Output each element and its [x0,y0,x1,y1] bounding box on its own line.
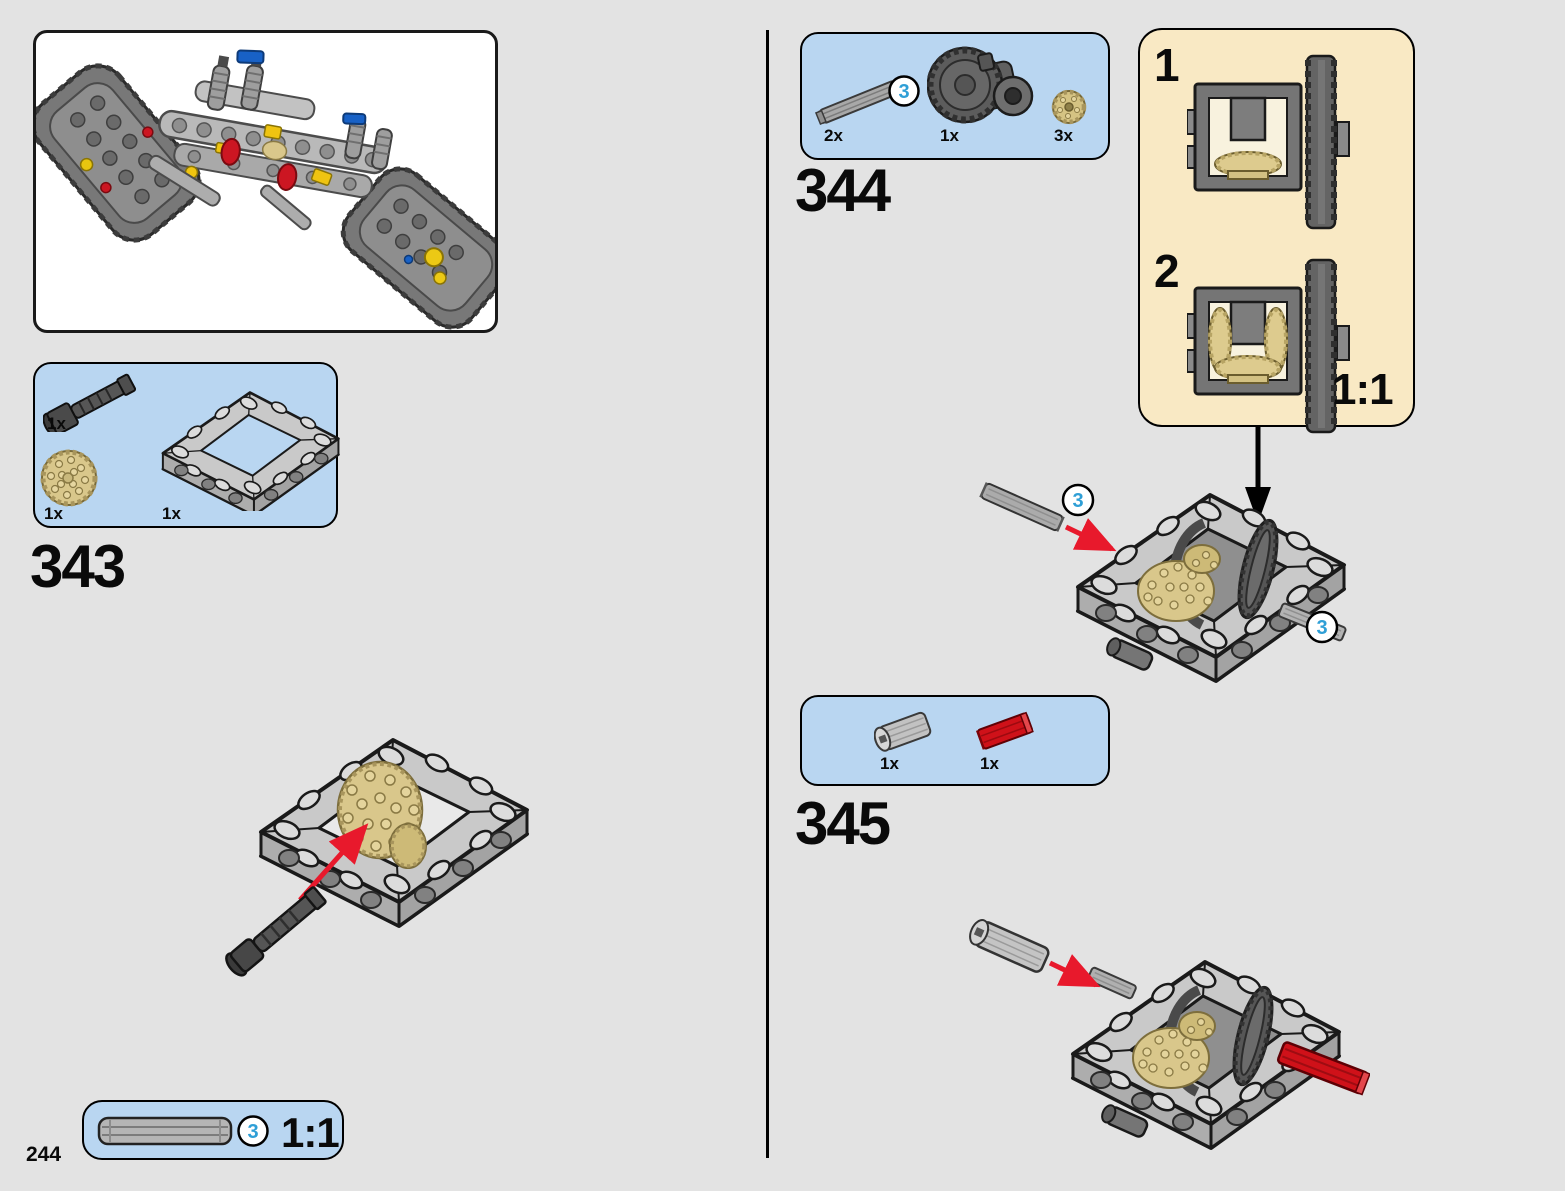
axle-scale-box: 3 1:1 [82,1100,344,1160]
qty-label: 1x [44,504,63,524]
parts-box-343: 1x 1x [33,362,338,528]
column-divider [766,30,769,1158]
assembly-345 [950,905,1370,1165]
step-number-345: 345 [795,794,889,854]
substep-2-label: 2 [1154,248,1180,294]
svg-text:3: 3 [1316,617,1327,639]
qty-label: 1x [880,754,899,774]
callout-circle-3: 3 [1063,485,1093,515]
insert-arrow [1066,527,1112,549]
svg-text:3: 3 [1072,490,1083,512]
page-number: 244 [26,1143,61,1167]
qty-label: 3x [1054,126,1073,146]
axle-1to1-icon [96,1111,236,1151]
qty-label: 2x [824,126,843,146]
axle-pin [223,884,329,978]
callout-circle-3: 3 [887,74,921,108]
qty-label: 1x [162,504,181,524]
step-number-343: 343 [30,537,124,597]
axle-connector [967,917,1051,973]
scale-box-1to1: 1 2 [1138,28,1415,427]
substep-1-illustration [1187,52,1352,232]
qty-label: 1x [940,126,959,146]
part-red-axle-icon [972,707,1038,753]
part-axle-connector-icon [874,707,936,753]
substep-2-illustration [1187,256,1352,436]
part-frame-icon [155,386,340,511]
scale-label: 1:1 [1332,368,1393,412]
parts-box-344: 3 2x 1x 3x [800,32,1110,160]
svg-text:3: 3 [247,1121,258,1143]
preview-illustration [36,33,495,330]
scale-label: 1:1 [281,1112,339,1154]
svg-text:3: 3 [898,81,909,103]
qty-label: 1x [980,754,999,774]
callout-circle-3: 3 [1307,612,1337,642]
parts-box-345: 1x 1x [800,695,1110,786]
instruction-page: 1x 1x [0,0,1565,1191]
preview-box [33,30,498,333]
step-number-344: 344 [795,161,889,221]
part-bevel-gear-icon [1048,86,1090,128]
assembly-343 [195,695,545,1015]
assembly-344: 3 3 [960,445,1380,695]
frame-with-differential [1078,495,1346,681]
substep-1-label: 1 [1154,42,1180,88]
part-knob-gear-icon [37,446,101,510]
callout-circle-3: 3 [236,1114,270,1148]
insert-axle [980,483,1063,532]
part-differential-icon [927,40,1037,135]
qty-label: 1x [47,414,66,434]
